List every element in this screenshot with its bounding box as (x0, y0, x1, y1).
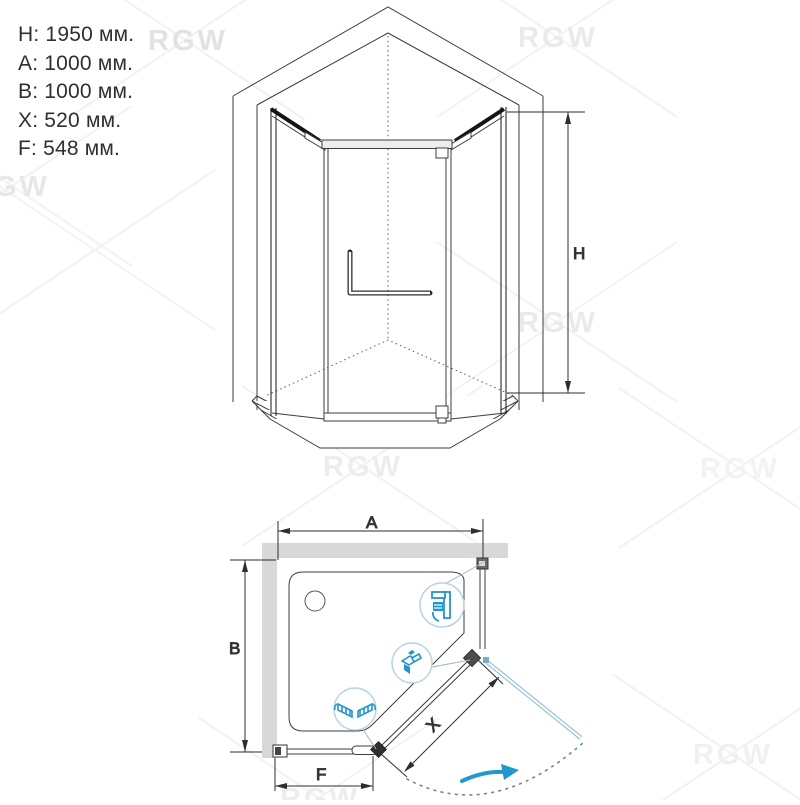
plan-view-drawing: A B F X (229, 513, 584, 795)
dimension-spec-list: H: 1950 мм. A: 1000 мм. B: 1000 мм. X: 5… (18, 21, 134, 164)
spec-line-h: H: 1950 мм. (18, 21, 134, 50)
rgw-watermark: RGW (518, 22, 598, 54)
rgw-watermark: RGW (693, 739, 773, 771)
rgw-watermark: RGW (148, 25, 228, 57)
wall-profile-callout (420, 583, 464, 627)
rgw-watermark: RGW (0, 171, 50, 203)
spec-line-a: A: 1000 мм. (18, 50, 134, 79)
door-frame-3d (322, 140, 452, 423)
bottom-pivot-hinge (436, 406, 448, 418)
front-dimension-label: F (316, 765, 326, 784)
door-hinge (464, 650, 481, 667)
shower-tray-3d (252, 396, 518, 448)
wall-profiles-3d (271, 107, 506, 416)
magnet-seal-callout (334, 688, 376, 730)
front-elevation-drawing: H (233, 7, 585, 448)
shower-enclosure-spec-image: RGW RGW RGW RGW RGW RGW RGW RGW (0, 0, 800, 800)
top-pivot-hinge (436, 148, 448, 158)
depth-dimension-label: B (229, 639, 240, 658)
rgw-watermark: RGW (518, 307, 598, 339)
spec-line-f: F: 548 мм. (18, 135, 134, 164)
width-dimension-label: A (366, 513, 378, 532)
swing-arc (407, 742, 584, 795)
hinge-callout (392, 643, 432, 683)
rgw-watermark: RGW (700, 453, 780, 485)
spec-line-b: B: 1000 мм. (18, 78, 134, 107)
door-handle-3d (350, 252, 430, 293)
door-dimension-label: X (422, 714, 443, 735)
walls-3d (233, 7, 543, 410)
rgw-watermark: RGW (323, 451, 403, 483)
door-swing-arrow-icon (462, 764, 519, 781)
spec-line-x: X: 520 мм. (18, 107, 134, 136)
height-dimension-label: H (573, 244, 585, 263)
